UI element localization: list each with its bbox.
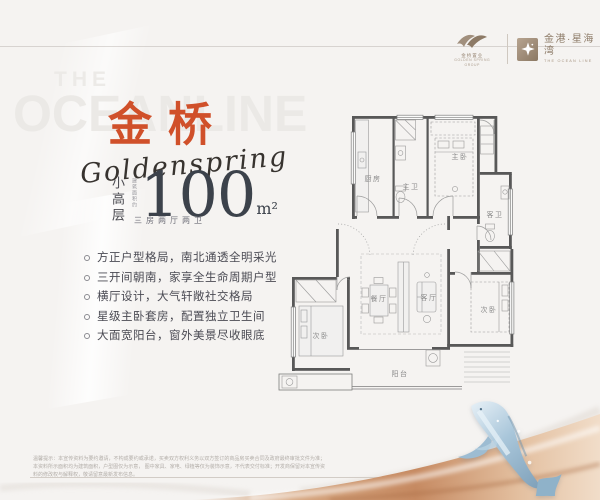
bullet-icon <box>84 255 90 261</box>
brand-logo-cn: 金桥 <box>108 103 228 149</box>
feature-item: 横厅设计，大气轩敞社交格局 <box>84 291 277 303</box>
feature-text: 横厅设计，大气轩敞社交格局 <box>97 291 253 303</box>
partner-logo-right: 金港·星海湾 THE OCEAN LINE <box>517 34 600 64</box>
feature-text: 方正户型格局，南北通透全明采光 <box>97 252 277 264</box>
feature-item: 三开间朝南，家享全生命周期户型 <box>84 272 277 284</box>
room-label-bedroom-left: 次卧 <box>313 331 330 340</box>
room-label-master-bath: 主卫 <box>403 182 420 191</box>
room-label-bedroom-right: 次卧 <box>481 305 498 314</box>
feature-item: 方正户型格局，南北通透全明采光 <box>84 252 277 264</box>
floorplan-drawing: 厨房 主卫 主卧 客卫 餐厅 客厅 次卧 次卧 阳台 <box>259 94 555 394</box>
bullet-icon <box>84 314 90 320</box>
room-label-guest-bath: 客卫 <box>487 210 504 219</box>
star-logo-icon <box>517 38 538 61</box>
headline-building-type: 小高层 <box>108 176 127 224</box>
sparkle-icon <box>520 41 536 57</box>
feature-list: 方正户型格局，南北通透全明采光 三开间朝南，家享全生命周期户型 横厅设计，大气轩… <box>84 252 277 350</box>
headline-area-note: 建筑面积约 <box>131 178 138 208</box>
partner-right-subtitle: THE OCEAN LINE <box>544 58 600 64</box>
poster-page: THE OCEANLINE 金桥 Goldenspring 小高层 建筑面积约 … <box>0 0 600 500</box>
room-label-kitchen: 厨房 <box>365 174 382 183</box>
bullet-icon <box>84 333 90 339</box>
bullet-icon <box>84 294 90 300</box>
feature-item: 星级主卧套房，配置独立卫生间 <box>84 311 277 323</box>
headline-layout-subtitle: 三房两厅两卫 <box>134 215 206 226</box>
partner-logos: 金桥置业 GOLDEN SPRING GROUP 金港·星海湾 THE OCEA… <box>446 28 600 70</box>
whale-illustration <box>447 400 565 496</box>
room-label-balcony: 阳台 <box>392 369 409 378</box>
bird-logo-icon <box>454 31 490 48</box>
room-label-dining: 餐厅 <box>371 294 388 303</box>
partner-logo-left: 金桥置业 GOLDEN SPRING GROUP <box>446 31 498 67</box>
room-label-master-bedroom: 主卧 <box>452 152 469 161</box>
floorplan-furniture <box>282 120 510 388</box>
feature-text: 三开间朝南，家享全生命周期户型 <box>97 272 277 284</box>
feature-text: 星级主卧套房，配置独立卫生间 <box>97 311 265 323</box>
bullet-icon <box>84 275 90 281</box>
room-label-living: 客厅 <box>421 293 438 302</box>
partner-right-name: 金港·星海湾 <box>544 34 600 58</box>
feature-item: 大面宽阳台，窗外美景尽收眼底 <box>84 330 277 342</box>
partner-left-line2: GOLDEN SPRING GROUP <box>446 58 498 67</box>
logo-divider <box>507 34 508 64</box>
ac-platform <box>464 352 510 382</box>
feature-text: 大面宽阳台，窗外美景尽收眼底 <box>97 330 265 342</box>
